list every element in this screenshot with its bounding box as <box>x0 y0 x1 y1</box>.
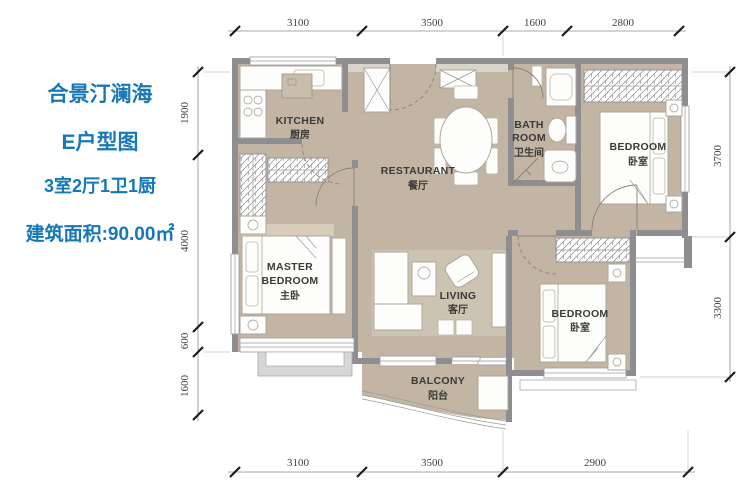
master-bay-window <box>240 338 354 352</box>
dim-left: 1900 4000 600 1600 <box>179 66 230 421</box>
corridor-wall-c <box>637 230 688 236</box>
bedroom2-parapet <box>520 380 636 390</box>
living-right-wall <box>506 236 512 358</box>
kitchen-label-zh: 厨房 <box>290 128 310 141</box>
dim-left-4: 1600 <box>179 375 191 398</box>
master-label-en2: BEDROOM <box>262 275 319 287</box>
dim-left-2: 4000 <box>179 230 191 253</box>
ottoman1 <box>438 320 454 335</box>
dim-right-1: 3700 <box>712 145 724 168</box>
dim-bottom-2: 3500 <box>421 457 444 469</box>
sofa-main <box>374 252 408 306</box>
master-nightstand2 <box>240 316 266 334</box>
restaurant-label-en: RESTAURANT <box>381 165 456 177</box>
ottoman2 <box>456 320 472 335</box>
restaurant-label-zh: 餐厅 <box>407 179 428 192</box>
dim-top-4: 2800 <box>612 17 635 29</box>
balcony-slider-1 <box>452 357 480 361</box>
bedroom1-nightstand2 <box>666 196 682 212</box>
bathroom-label-en1: BATH <box>514 119 544 131</box>
master-pillow2 <box>246 276 258 306</box>
ac-ledge-post <box>684 236 692 268</box>
master-right-wall-top <box>352 160 358 168</box>
kitchen-label-en: KITCHEN <box>276 115 325 127</box>
bedroom2-nightstand2 <box>608 354 626 370</box>
bedroom2-right-wall <box>630 230 636 376</box>
shower-tray <box>544 150 576 182</box>
living-bottom-wall-b <box>436 358 452 364</box>
bedroom1-nightstand1 <box>666 100 682 116</box>
washer <box>478 376 508 410</box>
dim-left-1: 1900 <box>179 102 191 125</box>
balcony-label-zh: 阳台 <box>428 389 448 402</box>
dim-right-2: 3300 <box>712 297 724 320</box>
tv-cabinet <box>492 253 506 327</box>
balcony-label-en: BALCONY <box>411 375 465 387</box>
dim-top-1: 3100 <box>287 17 310 29</box>
balcony-slider-2 <box>478 361 506 365</box>
bathroom-label-zh: 卫生间 <box>514 146 544 159</box>
toilet-bowl <box>548 118 566 142</box>
master-nightstand1 <box>240 216 266 234</box>
master-label-en1: MASTER <box>267 261 313 273</box>
dim-top-2: 3500 <box>421 17 444 29</box>
bedroom1-label-en: BEDROOM <box>610 141 667 153</box>
corridor-wall-a <box>508 230 518 236</box>
balcony-fixtures <box>478 376 508 410</box>
master-pillow1 <box>246 242 258 272</box>
floor-plan-drawing: KITCHEN 厨房 RESTAURANT 餐厅 BATH ROOM 卫生间 B… <box>0 0 750 500</box>
dining-chair-top <box>454 86 478 99</box>
dining-chair-bottom <box>454 172 478 185</box>
bathroom-label-en2: ROOM <box>512 132 546 144</box>
dim-bottom-3: 2900 <box>584 457 607 469</box>
corridor-wall-b <box>556 230 592 236</box>
bedroom1-pillow2 <box>653 158 665 194</box>
dim-bottom: 3100 3500 2900 <box>228 430 695 477</box>
bay-ledge-inner <box>266 352 344 366</box>
master-label-zh: 主卧 <box>280 289 300 302</box>
living-label-en: LIVING <box>440 290 477 302</box>
dining-table <box>440 107 492 173</box>
bedroom1-label-zh: 卧室 <box>628 155 648 168</box>
bedroom2-nightstand1 <box>608 264 626 282</box>
bedroom2-label-en: BEDROOM <box>552 308 609 320</box>
living-label-zh: 客厅 <box>447 303 468 316</box>
toilet-tank <box>566 116 576 144</box>
bedroom2-pillow2 <box>543 326 555 358</box>
floor-plan-page: 合景汀澜海 E户型图 3室2厅1卫1厨 建筑面积:90.00㎡ <box>0 0 750 500</box>
bath-sink <box>550 74 572 100</box>
dim-top: 3100 3500 1600 2800 <box>228 17 686 56</box>
dim-bottom-1: 3100 <box>287 457 310 469</box>
kitchen-right-wall <box>342 64 348 112</box>
sofa-chaise <box>374 304 422 330</box>
dim-left-3: 600 <box>179 332 191 349</box>
master-bench <box>332 238 346 314</box>
kitchen-island <box>282 74 312 98</box>
top-wall-right <box>436 58 688 64</box>
kitchen-counter-left <box>240 90 266 138</box>
living-bottom-wall-a <box>358 358 380 364</box>
dim-top-3: 1600 <box>524 17 547 29</box>
bedroom2-label-zh: 卧室 <box>570 321 590 334</box>
